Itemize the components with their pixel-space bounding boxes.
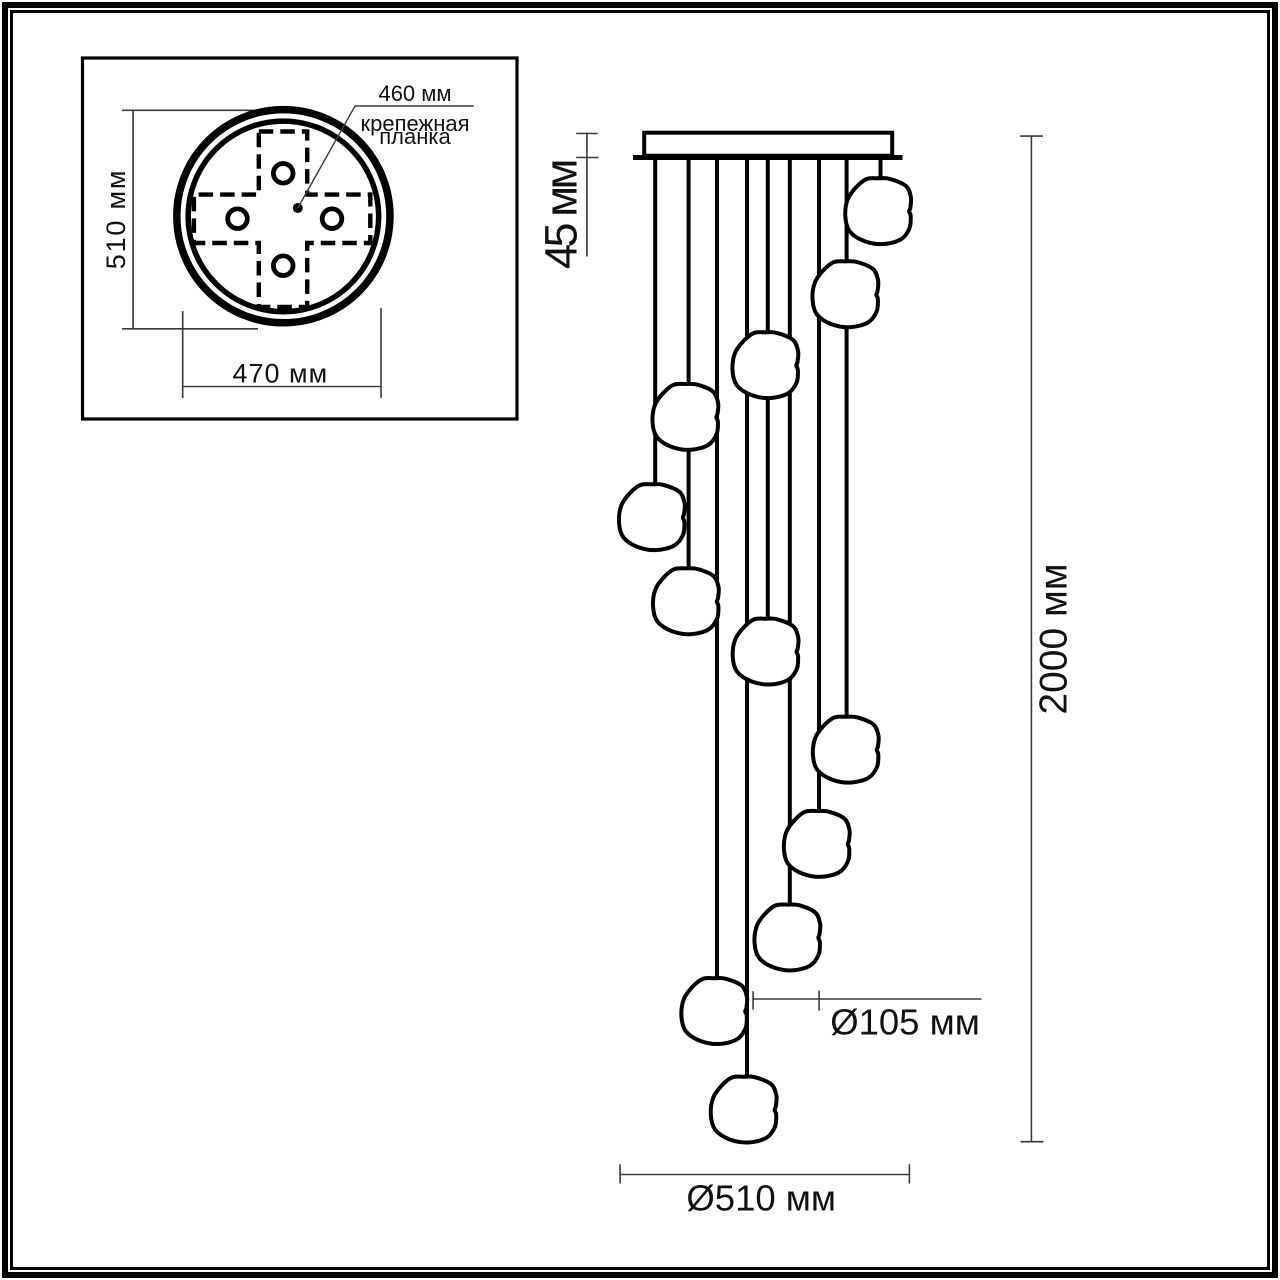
svg-text:45 мм: 45 мм xyxy=(536,161,587,268)
svg-text:470 мм: 470 мм xyxy=(232,358,328,388)
svg-text:460 мм: 460 мм xyxy=(378,81,451,106)
svg-text:планка: планка xyxy=(379,124,451,149)
svg-text:510 мм: 510 мм xyxy=(101,169,131,269)
svg-text:Ø105 мм: Ø105 мм xyxy=(830,1002,980,1043)
svg-text:Ø510 мм: Ø510 мм xyxy=(686,1178,836,1219)
svg-text:2000 мм: 2000 мм xyxy=(1033,563,1076,714)
